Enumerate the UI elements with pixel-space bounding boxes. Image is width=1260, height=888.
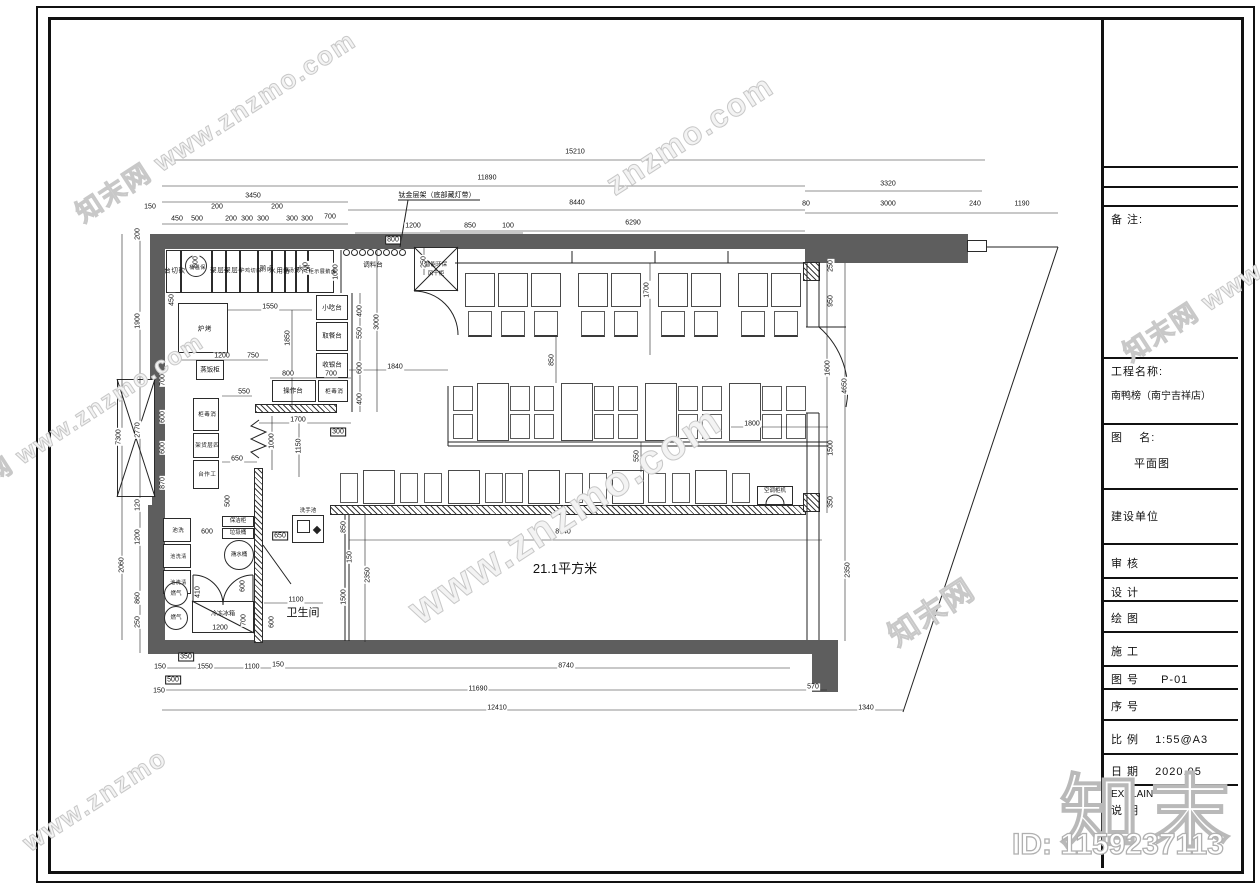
dim-label: 570 bbox=[806, 684, 820, 691]
review-label: 审 核 bbox=[1104, 545, 1238, 571]
dim-label: 150 bbox=[143, 204, 157, 211]
fixture-label: 小吃台 bbox=[322, 304, 342, 311]
fixture-label: 调料台 bbox=[363, 261, 383, 268]
fixture-label: 消毒柜 bbox=[324, 388, 342, 394]
titleblock-design: 设 计 bbox=[1104, 579, 1238, 602]
dim-label: 1550 bbox=[261, 304, 279, 311]
dim-label: 600 bbox=[160, 410, 167, 424]
dim-label: 12410 bbox=[486, 705, 507, 712]
dim-label: 1200 bbox=[135, 528, 142, 546]
dim-label: 550 bbox=[237, 389, 251, 396]
dim-label: 1150 bbox=[296, 437, 303, 454]
fixture-label: 四层货架 bbox=[194, 442, 218, 448]
dim-label: 8740 bbox=[554, 529, 572, 536]
explain-cn: 说 明 bbox=[1104, 800, 1238, 818]
fixture-label: 垃圾桶 bbox=[230, 530, 247, 536]
date-line: 日 期2020.05 bbox=[1104, 755, 1238, 779]
dim-label: 4650 bbox=[842, 377, 849, 395]
fig-no-label: 图 号 bbox=[1111, 674, 1139, 686]
titleblock-build-unit: 建设单位 bbox=[1104, 490, 1238, 545]
titleblock-draft: 绘 图 bbox=[1104, 602, 1238, 633]
project-name: 南鸭榜（南宁吉祥店） bbox=[1104, 379, 1238, 402]
dim-label: 1900 bbox=[135, 312, 142, 330]
dim-label: 800 bbox=[385, 236, 401, 245]
titleblock-blank-1 bbox=[1104, 168, 1238, 188]
dim-label: 150 bbox=[347, 550, 354, 564]
dim-label: 850 bbox=[549, 353, 556, 367]
explain-en: EXPLAIN bbox=[1104, 786, 1238, 800]
dim-label: 600 bbox=[269, 615, 276, 629]
dim-label: 300 bbox=[300, 216, 314, 223]
remarks-label: 备 注: bbox=[1104, 207, 1238, 227]
project-label: 工程名称: bbox=[1104, 359, 1238, 379]
dim-label: 1100 bbox=[287, 597, 304, 604]
dim-label: 1500 bbox=[828, 439, 835, 457]
dim-label: 500 bbox=[190, 216, 204, 223]
dim-label: 350 bbox=[178, 653, 194, 662]
dim-label: 120 bbox=[135, 498, 142, 512]
fixture-label: 卤鹅展示柜 bbox=[307, 269, 335, 274]
dim-label: 400 bbox=[357, 392, 364, 406]
dim-label: 3000 bbox=[879, 201, 897, 208]
titleblock-project: 工程名称: 南鸭榜（南宁吉祥店） bbox=[1104, 359, 1238, 425]
dim-label: 1100 bbox=[243, 664, 260, 671]
design-label: 设 计 bbox=[1104, 579, 1238, 600]
dim-label: 6290 bbox=[624, 220, 642, 227]
dim-label: 500 bbox=[165, 676, 181, 685]
drawing-name: 平面图 bbox=[1104, 445, 1238, 471]
dim-label: 450 bbox=[170, 216, 184, 223]
cad-sheet: 钛金层架（底部藏灯带） 1521011890345084403320803000… bbox=[0, 0, 1260, 888]
dim-label: 650 bbox=[230, 456, 244, 463]
dim-label: 1000 bbox=[269, 432, 276, 450]
seq-label: 序 号 bbox=[1104, 690, 1238, 714]
fixture-label: 燃气 bbox=[170, 591, 181, 597]
titleblock-fig-no: 图 号P-01 bbox=[1104, 667, 1238, 690]
dim-label: 300 bbox=[330, 428, 346, 437]
build-unit-label: 建设单位 bbox=[1104, 490, 1238, 524]
dim-label: 240 bbox=[968, 201, 982, 208]
titleblock-logo-area bbox=[1104, 17, 1238, 168]
dim-label: 300 bbox=[256, 216, 270, 223]
fixture-label: 消毒柜 bbox=[197, 411, 215, 417]
dim-label: 1600 bbox=[825, 359, 832, 377]
dim-label: 200 bbox=[270, 204, 284, 211]
dim-label: 3320 bbox=[879, 181, 897, 188]
dim-label: 11890 bbox=[477, 175, 498, 182]
dim-label: 300 bbox=[285, 216, 299, 223]
fixture-label: 潲水桶 bbox=[231, 552, 248, 558]
dim-label: 1840 bbox=[386, 364, 404, 371]
dim-label: 80 bbox=[801, 201, 811, 208]
dim-label: 850 bbox=[463, 223, 477, 230]
titleblock-date: 日 期2020.05 bbox=[1104, 755, 1238, 786]
fixture-label: 保温桶 bbox=[188, 265, 205, 270]
dim-label: 1200 bbox=[213, 353, 231, 360]
dim-label: 950 bbox=[828, 294, 835, 308]
date-label: 日 期 bbox=[1111, 766, 1139, 778]
dim-label: 150 bbox=[152, 688, 166, 695]
fixture-label: 砍切台 bbox=[162, 267, 183, 274]
scale-line: 比 例1:55@A3 bbox=[1104, 721, 1238, 747]
dim-label: 700 bbox=[160, 373, 167, 387]
dim-label: 700 bbox=[323, 214, 337, 221]
fixture-label: 21.1平方米 bbox=[533, 562, 597, 576]
fixture-label: 取餐台 bbox=[322, 332, 342, 339]
fixture-label: 燃气 bbox=[170, 615, 181, 621]
dim-label: 700 bbox=[324, 371, 338, 378]
fig-no-line: 图 号P-01 bbox=[1104, 667, 1238, 687]
dim-label: 1500 bbox=[341, 588, 348, 606]
dim-label: 1700 bbox=[644, 281, 651, 299]
dim-label: 750 bbox=[246, 353, 260, 360]
dim-label: 1190 bbox=[1013, 201, 1030, 208]
dim-label: 300 bbox=[240, 216, 254, 223]
fixture-label: 工作台 bbox=[197, 471, 215, 477]
dim-label: 600 bbox=[160, 441, 167, 455]
fig-no-value: P-01 bbox=[1161, 674, 1188, 686]
fixture-label: 洗手池 bbox=[300, 508, 317, 514]
titleblock-blank-2 bbox=[1104, 188, 1238, 207]
dim-label: 200 bbox=[210, 204, 224, 211]
dim-label: 1800 bbox=[743, 421, 761, 428]
dim-label: 1850 bbox=[285, 329, 292, 347]
dim-label: 350 bbox=[828, 495, 835, 509]
scale-value: 1:55@A3 bbox=[1155, 734, 1208, 746]
dim-label: 860 bbox=[135, 591, 142, 605]
dim-label: 200 bbox=[224, 216, 238, 223]
dim-label: 870 bbox=[160, 476, 167, 490]
fixture-label: 清洗池 bbox=[169, 580, 186, 585]
dim-label: 2770 bbox=[135, 421, 142, 439]
titleblock-review: 审 核 bbox=[1104, 545, 1238, 579]
dim-label: 410 bbox=[195, 585, 202, 599]
dim-label: 550 bbox=[357, 326, 364, 340]
fixture-label: 洗池 bbox=[171, 527, 183, 533]
fixture-label: 操作台 bbox=[283, 387, 303, 394]
fixture-label: 空调柜机 bbox=[764, 488, 786, 494]
dim-label: 1700 bbox=[289, 417, 307, 424]
titleblock-explain: EXPLAIN 说 明 bbox=[1104, 786, 1238, 868]
dim-label: 2350 bbox=[845, 561, 852, 579]
dim-label: 700 bbox=[241, 613, 248, 627]
dim-label: 250 bbox=[135, 615, 142, 629]
dim-label: 1200 bbox=[404, 223, 422, 230]
fixture-label: 保洁柜 bbox=[230, 518, 247, 524]
dim-label: 2060 bbox=[119, 556, 126, 574]
fixture-label: 收银台 bbox=[322, 361, 342, 368]
dim-label: 150 bbox=[271, 662, 285, 669]
date-value: 2020.05 bbox=[1155, 766, 1202, 778]
dim-label: 600 bbox=[240, 579, 247, 593]
dim-label: 7300 bbox=[116, 428, 123, 446]
construction-label: 施 工 bbox=[1104, 633, 1238, 659]
dim-label: 600 bbox=[357, 361, 364, 375]
dim-label: 800 bbox=[281, 371, 295, 378]
titleblock-drawing: 图 名: 平面图 bbox=[1104, 425, 1238, 490]
drawing-label: 图 名: bbox=[1104, 425, 1238, 445]
dim-label: 15210 bbox=[564, 149, 585, 156]
dim-label: 11690 bbox=[468, 686, 489, 693]
fixture-label: 烤炉 bbox=[196, 325, 210, 332]
dim-label: 250 bbox=[828, 259, 835, 273]
fixture-label: 清洗池 bbox=[169, 554, 186, 559]
fixture-label: 卫生间 bbox=[287, 607, 320, 619]
scale-label: 比 例 bbox=[1111, 734, 1139, 746]
fixture-label: 白切鸡炉 bbox=[238, 268, 260, 273]
titleblock-seq: 序 号 bbox=[1104, 690, 1238, 721]
dim-label: 1340 bbox=[857, 705, 875, 712]
titleblock-scale: 比 例1:55@A3 bbox=[1104, 721, 1238, 755]
dim-label: 1200 bbox=[211, 625, 229, 632]
titleblock-remarks: 备 注: bbox=[1104, 207, 1238, 359]
dim-label: 200 bbox=[135, 227, 142, 241]
dim-label: 400 bbox=[357, 304, 364, 318]
dim-label: 550 bbox=[634, 449, 641, 463]
dim-label: 2350 bbox=[365, 566, 372, 584]
dim-label: 3000 bbox=[374, 313, 381, 331]
dim-label: 600 bbox=[200, 529, 214, 536]
dim-label: 850 bbox=[341, 520, 348, 534]
fixture-label: 蒸饭柜 bbox=[200, 366, 220, 373]
dim-label: 1550 bbox=[196, 664, 214, 671]
floor-plan: 钛金层架（底部藏灯带） 1521011890345084403320803000… bbox=[0, 0, 1100, 888]
dim-label: 8740 bbox=[557, 663, 575, 670]
fixture-label: 风干柜 bbox=[428, 271, 445, 277]
draft-label: 绘 图 bbox=[1104, 602, 1238, 626]
fixture-label: 冷冻冰箱 bbox=[211, 612, 235, 619]
dim-label: 650 bbox=[272, 532, 288, 541]
dim-label: 450 bbox=[169, 293, 176, 307]
dim-label: 3450 bbox=[244, 193, 262, 200]
dim-label: 8440 bbox=[568, 200, 586, 207]
shelf-note: 钛金层架（底部藏灯带） bbox=[399, 192, 476, 200]
dim-label: 100 bbox=[501, 223, 515, 230]
dim-label: 150 bbox=[153, 664, 167, 671]
titleblock-construction: 施 工 bbox=[1104, 633, 1238, 667]
dim-label: 500 bbox=[225, 494, 232, 508]
fixture-label: 智能环保 bbox=[425, 262, 447, 268]
